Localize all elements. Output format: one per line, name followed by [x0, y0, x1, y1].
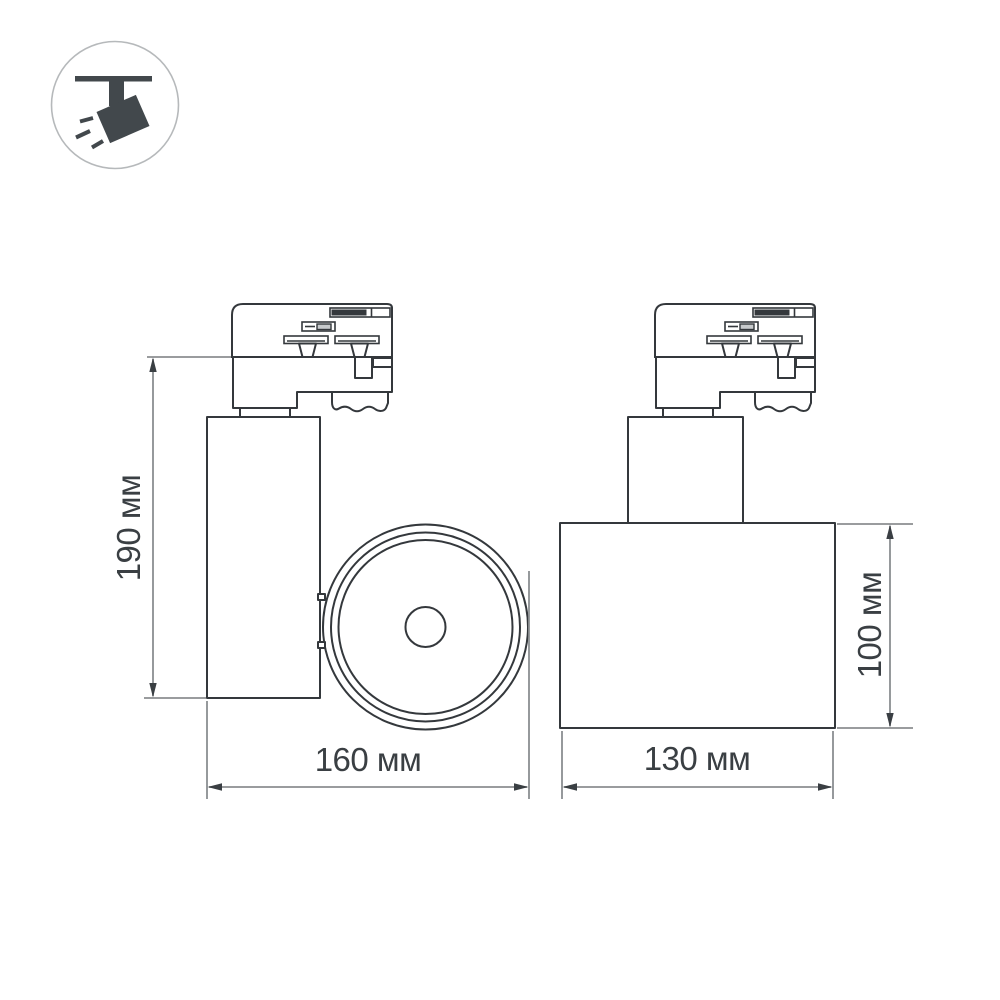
dimension-drawing-page: 190 мм 160 мм 130 мм 100 мм — [0, 0, 1000, 1000]
neck-rotated — [663, 408, 713, 417]
arrowhead-100-up — [886, 525, 893, 540]
dimension-160: 160 мм — [207, 571, 529, 799]
adapter-side-tab — [373, 358, 392, 367]
arrowhead-190-down — [149, 683, 156, 698]
side-view-drawing — [207, 304, 528, 730]
dimension-label-190: 190 мм — [110, 475, 147, 582]
lens-inner-ring — [339, 540, 513, 714]
adapter-contact-right — [335, 336, 379, 357]
adapter-contact-left — [284, 336, 328, 357]
lens-center-circle — [406, 607, 446, 647]
arrowhead-130-left — [563, 783, 578, 790]
dimension-100: 100 мм — [837, 524, 913, 728]
dimension-label-160: 160 мм — [315, 741, 422, 778]
lens-outer-ring — [323, 525, 528, 730]
adapter-stem-block — [355, 357, 372, 378]
cylinder-housing-side — [207, 417, 320, 698]
lens-middle-ring — [331, 533, 520, 722]
adapter-label-strip-fill — [332, 310, 367, 316]
adapter-switch-knob — [317, 324, 331, 330]
cylinder-upper-rotated — [628, 417, 743, 523]
adapter-wavy-cover — [332, 392, 388, 411]
track-spotlight-icon — [52, 42, 179, 169]
arrowhead-100-down — [886, 713, 893, 728]
rotated-view-drawing — [560, 304, 835, 728]
lens-bracket-bottom — [318, 642, 325, 648]
arrowhead-160-left — [208, 783, 223, 790]
lens-bracket-top — [318, 594, 325, 600]
technical-drawing-canvas: 190 мм 160 мм 130 мм 100 мм — [0, 0, 1000, 1000]
body-rotated — [560, 523, 835, 728]
dimension-label-130: 130 мм — [644, 740, 751, 777]
arrowhead-190-up — [149, 358, 156, 373]
lamp-head-icon — [96, 95, 149, 143]
arrowhead-160-right — [514, 783, 529, 790]
track-adapter-side — [232, 304, 392, 411]
track-adapter-rotated — [655, 304, 815, 411]
dimension-label-100: 100 мм — [851, 572, 888, 679]
dimension-190: 190 мм — [110, 357, 231, 698]
light-rays-icon — [76, 118, 103, 148]
neck-side — [240, 408, 290, 417]
adapter-lower-outline — [233, 357, 392, 408]
arrowhead-130-right — [818, 783, 833, 790]
front-lens — [318, 525, 528, 730]
dimension-130: 130 мм — [562, 731, 833, 799]
